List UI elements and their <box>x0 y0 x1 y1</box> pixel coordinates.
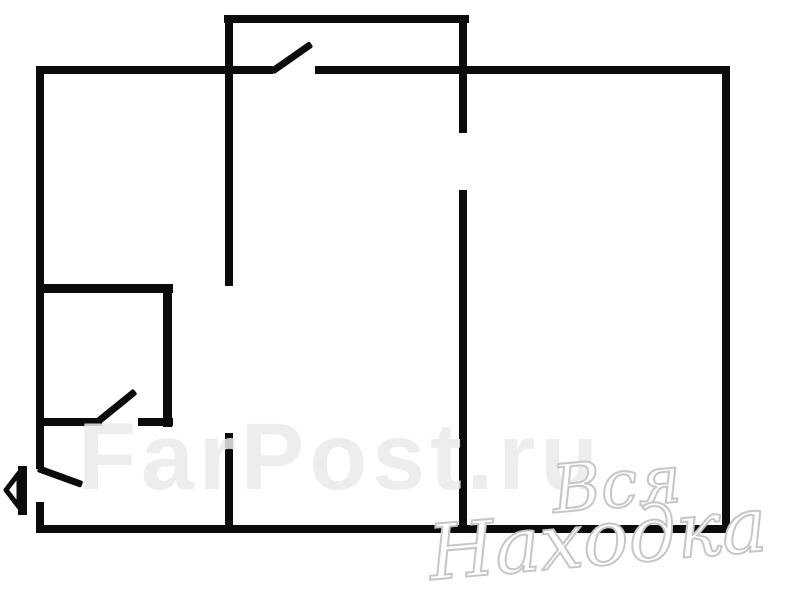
floor-plan: FarPost.ru Вся Находка <box>0 0 800 615</box>
balcony-top-wall <box>224 15 469 23</box>
balcony-door-leaf <box>270 41 313 74</box>
room-partition-upper <box>459 15 467 133</box>
watermark-farpost: FarPost.ru <box>78 403 603 512</box>
hall-partition-upper <box>225 15 233 286</box>
bathroom-top-wall <box>36 284 173 293</box>
outer-top-wall-left <box>36 66 273 74</box>
entrance-arrow-icon <box>3 464 37 518</box>
outer-top-wall-right <box>315 66 730 74</box>
outer-left-wall-upper <box>36 66 44 469</box>
outer-right-wall <box>722 66 730 533</box>
entrance-door-leaf <box>37 465 84 488</box>
